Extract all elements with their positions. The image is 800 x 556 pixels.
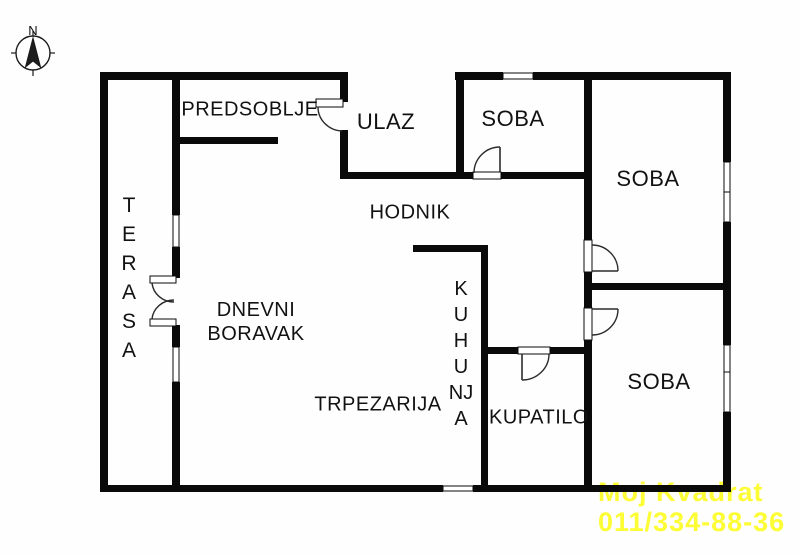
wall-hodnik-b [501,172,588,179]
wall-bottom-a [100,485,443,492]
wall-long-b [584,272,592,308]
terasa-letter: T [123,191,136,220]
kuhinja-letter: NJ [449,380,473,406]
kuhinja-letter: K [454,276,467,302]
door-soba-top [473,147,501,179]
label-trpezarija: TRPEZARIJA [314,394,441,417]
label-kuhinja: K U H U NJ A [449,276,473,432]
wall-terasa-b [172,247,180,278]
outer-walls [100,72,731,492]
label-soba-top: SOBA [481,106,544,132]
door-terasa-double [150,276,176,326]
wall-kuhinja-top [413,245,488,252]
window-terasa-upper [173,215,179,247]
door-soba-right-upper [584,240,618,272]
door-kupatilo [518,347,550,380]
wall-top-left [100,72,348,80]
wall-top-right-b [533,72,731,80]
label-kupatilo: KUPATILO [489,407,589,430]
wall-terasa-c [172,325,180,347]
door-entry [316,99,343,131]
terasa-letter: A [122,336,136,365]
window-right-upper [724,162,730,222]
label-dnevni-boravak: DNEVNI BORAVAK [207,298,304,346]
watermark-line1: Moj Kvadrat [598,477,785,507]
wall-soba-top-left [456,72,464,179]
wall-terasa-d [172,382,180,492]
wall-top-right-a [455,72,503,80]
label-predsoblje: PREDSOBLJE [181,99,318,122]
wall-terasa-a [172,72,180,215]
compass-north-label: N [28,23,37,38]
wall-left [100,72,108,492]
kuhinja-letter: U [454,302,468,328]
label-hodnik: HODNIK [370,202,451,225]
floor-plan: Moj Kvadrat 011/334-88-36 N [0,0,800,556]
watermark: Moj Kvadrat 011/334-88-36 [598,477,785,537]
compass-icon: N [11,23,55,76]
floor-plan-drawing: N [0,0,800,556]
label-terasa: T E R A S A [121,191,136,365]
window-soba-top [503,73,533,79]
label-soba-right-lower: SOBA [627,369,690,395]
wall-right-b [723,222,731,345]
wall-ulaz-b [340,130,348,179]
kuhinja-letter: A [454,406,467,432]
kuhinja-letter: H [454,328,468,354]
window-terasa-lower [173,347,179,382]
terasa-letter: S [122,307,136,336]
wall-long-a [584,72,592,240]
label-soba-right-upper: SOBA [616,166,679,192]
label-ulaz: ULAZ [357,109,415,135]
watermark-line2: 011/334-88-36 [598,507,785,537]
label-dnevni-line2: BORAVAK [207,322,304,346]
wall-kupatilo-a [481,347,518,354]
wall-soba-divider [584,283,731,290]
terasa-letter: R [121,249,136,278]
wall-predsoblje-bottom [172,137,278,144]
kuhinja-letter: U [454,354,468,380]
wall-ulaz-a [340,72,348,102]
window-bottom [443,486,473,491]
wall-hodnik-a [340,172,473,179]
terasa-letter: A [122,278,136,307]
terasa-letter: E [122,220,136,249]
label-dnevni-line1: DNEVNI [207,298,304,322]
wall-kupatilo-b [550,347,588,354]
window-right-lower [724,345,730,412]
wall-right-a [723,72,731,162]
door-soba-right-lower [584,308,618,340]
wall-kuhinja-right [481,245,488,492]
